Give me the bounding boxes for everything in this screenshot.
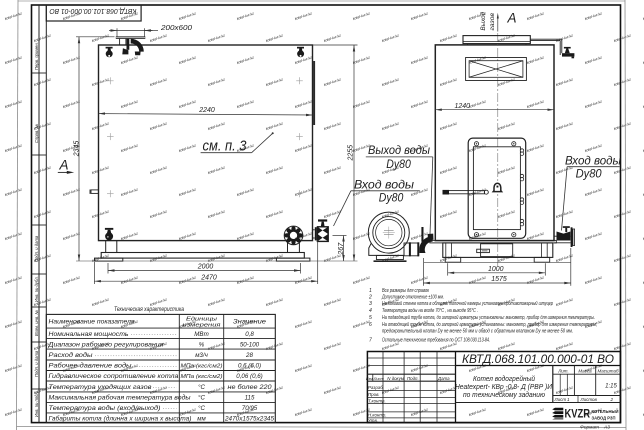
svg-text:Heatexpert- КВр -0,8- Д (РВР ): Heatexpert- КВр -0,8- Д (РВР )И [455, 384, 553, 391]
svg-text:На боковой стенке котла в обла: На боковой стенке котла в области топочн… [382, 300, 553, 307]
svg-text:А: А [507, 11, 517, 26]
svg-text:Температура уходящих газов: Температура уходящих газов [49, 384, 153, 391]
svg-text:Номинальная мощность: Номинальная мощность [49, 331, 129, 338]
svg-text:Техническая характеристика: Техническая характеристика [114, 306, 184, 313]
svg-text:2470х1575х2345: 2470х1575х2345 [224, 415, 275, 422]
svg-text:1000: 1000 [488, 266, 504, 273]
svg-text:МВт: МВт [194, 331, 208, 338]
svg-text:Перв. примен.: Перв. примен. [34, 42, 39, 70]
svg-text:2470: 2470 [200, 274, 217, 281]
svg-text:Допустимое отклонение ±100 мм.: Допустимое отклонение ±100 мм. [381, 294, 444, 300]
svg-text:Лит.: Лит. [557, 369, 569, 374]
svg-text:На отводящей трубе котла, до: На отводящей трубе котла, до запорной ар… [382, 321, 597, 328]
svg-text:200x600: 200x600 [160, 23, 192, 32]
svg-text:А3: А3 [603, 425, 610, 430]
svg-text:Лист: Лист [554, 397, 567, 402]
svg-text:3: 3 [369, 301, 372, 307]
svg-text:2240: 2240 [198, 107, 215, 114]
svg-text:4: 4 [369, 308, 372, 314]
svg-text:Инв. № дубл.: Инв. № дубл. [34, 276, 39, 302]
svg-text:по техническому заданию: по техническому заданию [463, 391, 546, 399]
svg-text:Габариты котла (длинна х ширин: Габариты котла (длинна х ширина х высота… [49, 415, 192, 422]
svg-text:Температура воды на входе 70°: Температура воды на входе 70°С , на выхо… [382, 308, 478, 314]
svg-text:МПа (кгс/см2): МПа (кгс/см2) [181, 364, 223, 370]
svg-text:КОТЕЛЬНЫЙ: КОТЕЛЬНЫЙ [592, 409, 619, 414]
svg-text:Н.контр.: Н.контр. [368, 412, 387, 417]
svg-text:Формат: Формат [580, 425, 599, 430]
svg-text:1575: 1575 [491, 276, 507, 283]
svg-text:Максимальная рабочая температу: Максимальная рабочая температура воды [49, 395, 191, 402]
svg-text:КВТД.068.101.00.000-01 ВО: КВТД.068.101.00.000-01 ВО [49, 7, 136, 16]
svg-text:Лист: Лист [373, 376, 385, 381]
svg-text:°С: °С [198, 395, 205, 402]
svg-text:Dy80: Dy80 [386, 157, 411, 171]
svg-text:70/95: 70/95 [242, 405, 258, 412]
svg-text:0,8: 0,8 [245, 331, 254, 338]
svg-text:Температура воды (вход/выход): Температура воды (вход/выход) [49, 405, 161, 412]
svg-text:0,6 (6,0): 0,6 (6,0) [238, 363, 261, 370]
svg-text:Подп. и дата: Подп. и дата [34, 350, 39, 377]
svg-text:Пров.: Пров. [368, 392, 380, 397]
svg-text:28: 28 [245, 352, 253, 359]
svg-text:Дата: Дата [437, 376, 450, 381]
svg-text:мм: мм [197, 415, 206, 422]
svg-text:Все размеры для справок: Все размеры для справок [382, 288, 429, 294]
svg-text:KVZR: KVZR [565, 409, 591, 421]
svg-text:м3/ч: м3/ч [195, 352, 208, 359]
svg-text:Утв.: Утв. [368, 418, 378, 423]
svg-text:115: 115 [245, 395, 255, 402]
svg-text:газов: газов [489, 12, 496, 30]
svg-text:2000: 2000 [197, 264, 214, 271]
svg-text:2: 2 [610, 397, 614, 402]
svg-text:50-100: 50-100 [240, 341, 260, 348]
svg-text:Справ. №: Справ. № [34, 124, 39, 143]
svg-text:Взам. инв. №: Взам. инв. № [34, 310, 39, 336]
svg-text:измерения: измерения [183, 323, 221, 329]
svg-text:Dy80: Dy80 [379, 190, 404, 204]
svg-text:Инв. № подл.: Инв. № подл. [34, 391, 39, 417]
svg-text:Масштаб: Масштаб [597, 369, 618, 374]
svg-text:°С: °С [198, 405, 205, 412]
svg-text:°С: °С [198, 384, 205, 391]
svg-text:Подп.: Подп. [407, 376, 419, 381]
svg-text:Вход воды: Вход воды [354, 177, 414, 191]
svg-text:1240: 1240 [455, 103, 471, 110]
svg-text:А: А [59, 158, 69, 173]
svg-text:ЗАВОД РЗП: ЗАВОД РЗП [592, 416, 616, 421]
svg-text:1: 1 [369, 288, 372, 294]
svg-text:Значение: Значение [233, 319, 267, 326]
svg-text:КВТД.068.101.00.000-01 ВО: КВТД.068.101.00.000-01 ВО [462, 352, 614, 366]
svg-text:Масса: Масса [578, 369, 592, 374]
svg-text:7: 7 [369, 338, 372, 344]
svg-text:На подводящей трубе котла, до: На подводящей трубе котла, до запорной а… [382, 314, 595, 321]
svg-text:Расход воды: Расход воды [49, 352, 94, 359]
svg-text:Т.контр.: Т.контр. [368, 398, 386, 403]
svg-text:Наименование показателя: Наименование показателя [49, 319, 136, 326]
svg-text:Гидравлическое сопротивление к: Гидравлическое сопротивление котла [49, 373, 180, 380]
svg-text:5: 5 [369, 315, 372, 321]
svg-text:предохранительный клапан Dу: предохранительный клапан Dу не менее 50 … [382, 327, 573, 334]
svg-text:не более 220: не более 220 [228, 384, 273, 391]
svg-text:Разраб.: Разраб. [368, 385, 384, 390]
svg-text:Подп. и дата: Подп. и дата [34, 235, 39, 262]
svg-text:6: 6 [369, 322, 372, 328]
svg-text:Dy80: Dy80 [576, 166, 602, 180]
svg-text:Изм: Изм [366, 377, 373, 381]
svg-text:Остальные технические требован: Остальные технические требования по ОСТ … [382, 338, 490, 344]
svg-text:N докум.: N докум. [387, 376, 405, 381]
svg-text:Вход воды: Вход воды [565, 154, 621, 168]
svg-text:267: 267 [338, 242, 345, 256]
svg-text:0,06 (0,6): 0,06 (0,6) [236, 373, 262, 380]
svg-text:%: % [199, 341, 205, 348]
svg-text:Диапазон рабочего регулировани: Диапазон рабочего регулирования [47, 341, 164, 348]
svg-text:2: 2 [368, 294, 372, 300]
svg-text:Листов: Листов [580, 397, 598, 402]
svg-text:МПа (кгс/см2): МПа (кгс/см2) [181, 374, 223, 380]
svg-text:Выход: Выход [480, 11, 487, 30]
svg-text:Рабочее давление воды: Рабочее давление воды [49, 363, 133, 370]
svg-text:см. п. 3: см. п. 3 [203, 138, 248, 155]
svg-text:Выход воды: Выход воды [368, 143, 430, 157]
svg-text:2345: 2345 [73, 141, 80, 158]
svg-text:Котел водогрейный: Котел водогрейный [473, 375, 535, 383]
svg-text:2255: 2255 [347, 145, 354, 162]
svg-text:1:15: 1:15 [605, 384, 617, 390]
